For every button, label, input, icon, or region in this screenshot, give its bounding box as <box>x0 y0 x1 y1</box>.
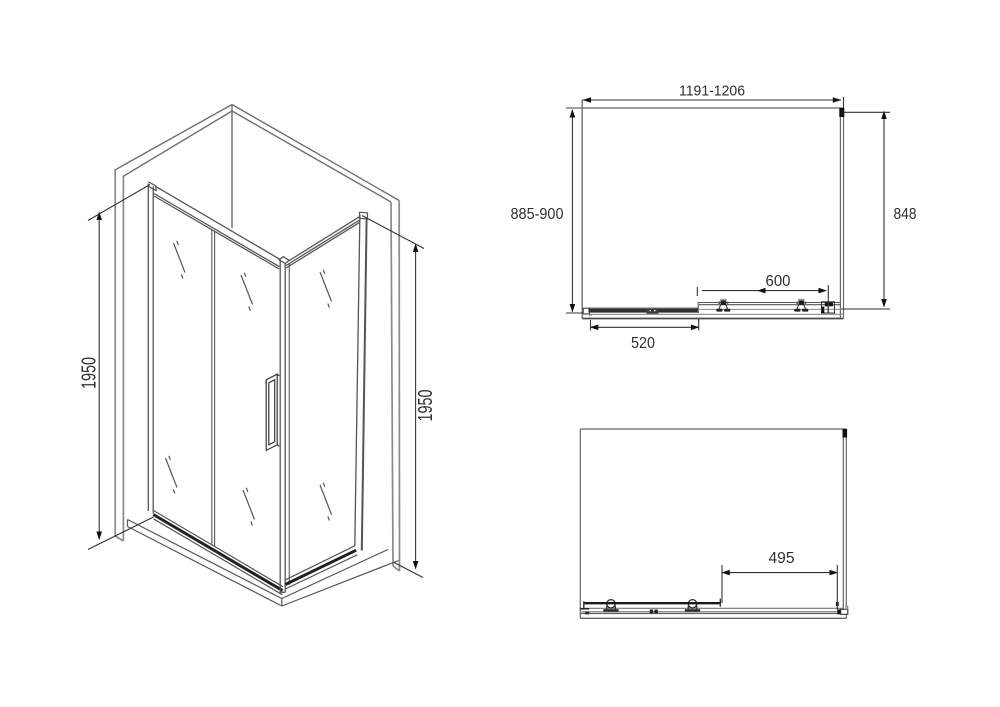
svg-text:520: 520 <box>631 335 655 352</box>
svg-text:1950: 1950 <box>79 357 101 389</box>
svg-text:885-900: 885-900 <box>511 206 564 223</box>
svg-text:1950: 1950 <box>415 390 437 422</box>
svg-text:495: 495 <box>769 550 795 567</box>
svg-text:848: 848 <box>894 206 917 223</box>
svg-text:1191-1206: 1191-1206 <box>679 83 745 100</box>
svg-text:600: 600 <box>766 273 791 290</box>
